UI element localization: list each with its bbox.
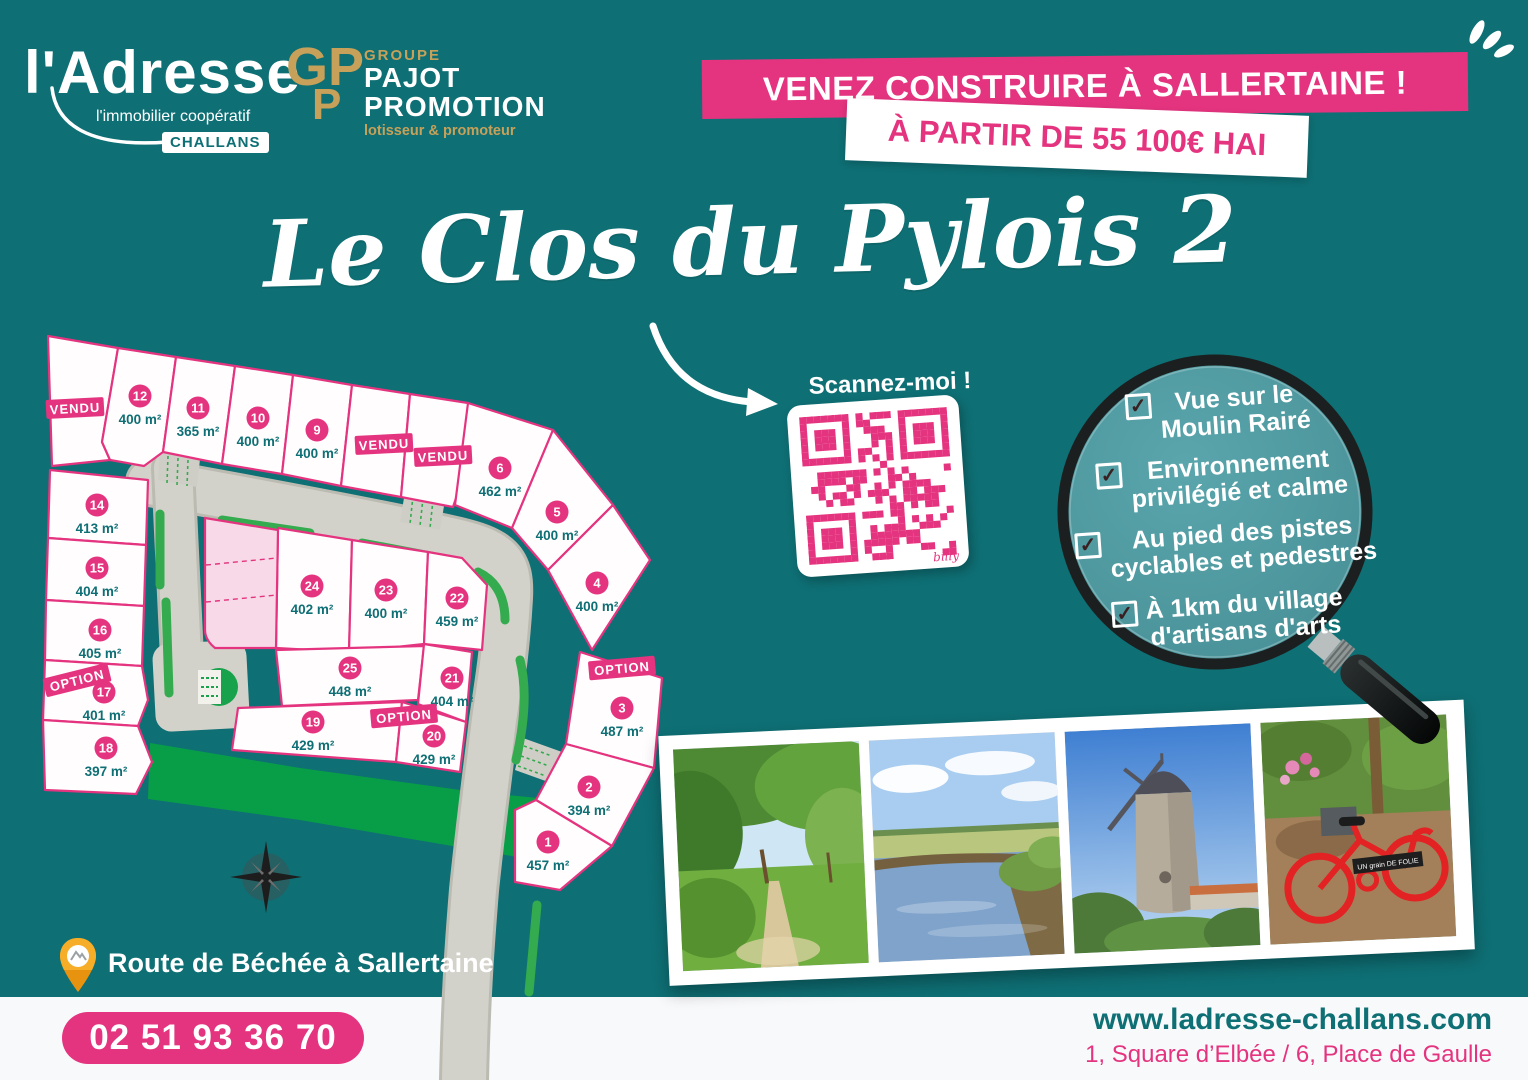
svg-text:19: 19 xyxy=(306,715,320,730)
ladresse-city-badge: CHALLANS xyxy=(162,132,269,153)
svg-text:401 m²: 401 m² xyxy=(83,708,126,723)
svg-text:5: 5 xyxy=(553,505,560,520)
poster: 1457 m²2394 m²3487 m²4400 m²5400 m²6462 … xyxy=(0,0,1528,1080)
lot-marker: 11365 m² xyxy=(177,397,220,440)
lot-marker: 3487 m² xyxy=(601,697,644,740)
pajot-tagline: lotisseur & promoteur xyxy=(364,124,546,139)
ladresse-tagline: l'immobilier coopératif xyxy=(96,108,250,126)
feature-item: ✓ Environnement privilégié et calme xyxy=(1095,444,1349,515)
svg-text:400 m²: 400 m² xyxy=(237,434,280,449)
svg-text:18: 18 xyxy=(99,741,113,756)
parking-stub xyxy=(158,452,200,487)
arrow-to-qr-icon xyxy=(653,326,778,416)
checkbox-icon: ✓ xyxy=(1074,532,1102,560)
svg-text:405 m²: 405 m² xyxy=(79,646,122,661)
svg-text:24: 24 xyxy=(305,579,320,594)
lot-marker: 4400 m² xyxy=(576,572,619,615)
status-label: VENDU xyxy=(414,445,473,467)
svg-text:12: 12 xyxy=(133,389,147,404)
svg-text:11: 11 xyxy=(191,401,205,416)
location-pin-icon xyxy=(60,938,96,992)
status-label: OPTION xyxy=(42,663,111,698)
lot-marker: 12400 m² xyxy=(119,385,162,428)
checkbox-icon: ✓ xyxy=(1111,600,1139,628)
photo-red-bicycle: UN grain DE FOLIE xyxy=(1260,714,1456,944)
sparkle-icon xyxy=(1466,18,1515,60)
lots-layer: 1457 m²2394 m²3487 m²4400 m²5400 m²6462 … xyxy=(42,385,656,874)
checkbox-icon: ✓ xyxy=(1124,393,1152,421)
svg-text:394 m²: 394 m² xyxy=(568,803,611,818)
lot-marker: 24402 m² xyxy=(291,575,334,618)
svg-text:459 m²: 459 m² xyxy=(436,614,479,629)
qr-modules xyxy=(799,407,957,565)
svg-text:15: 15 xyxy=(90,561,104,576)
lot-marker: 1457 m² xyxy=(527,831,570,874)
svg-text:397 m²: 397 m² xyxy=(85,764,128,779)
svg-text:22: 22 xyxy=(450,591,464,606)
svg-text:10: 10 xyxy=(251,411,265,426)
compass-rose xyxy=(230,841,302,913)
feature-item: ✓ À 1km du village d'artisans d'arts xyxy=(1111,584,1346,654)
lot-marker: 9400 m² xyxy=(296,419,339,462)
pajot-logo-text: GROUPE PAJOT PROMOTION lotisseur & promo… xyxy=(364,48,546,139)
svg-text:14: 14 xyxy=(90,498,105,513)
pajot-groupe: GROUPE xyxy=(364,48,546,63)
lot-marker: 17401 m² xyxy=(83,681,126,724)
svg-text:20: 20 xyxy=(427,729,441,744)
svg-text:402 m²: 402 m² xyxy=(291,602,334,617)
svg-text:3: 3 xyxy=(618,701,625,716)
lot-marker: 20429 m² xyxy=(413,725,456,768)
photo-windmill xyxy=(1065,723,1261,953)
svg-text:VENDU: VENDU xyxy=(417,448,468,466)
svg-text:413 m²: 413 m² xyxy=(76,521,119,536)
pink-parcel xyxy=(205,518,278,648)
svg-text:487 m²: 487 m² xyxy=(601,724,644,739)
svg-text:429 m²: 429 m² xyxy=(413,752,456,767)
feature-item: ✓ Vue sur le Moulin Rairé xyxy=(1124,380,1311,447)
svg-text:400 m²: 400 m² xyxy=(576,599,619,614)
svg-text:404 m²: 404 m² xyxy=(431,694,474,709)
svg-text:OPTION: OPTION xyxy=(48,666,106,694)
svg-text:6: 6 xyxy=(496,461,503,476)
svg-text:404 m²: 404 m² xyxy=(76,584,119,599)
svg-text:400 m²: 400 m² xyxy=(119,412,162,427)
svg-text:17: 17 xyxy=(97,685,111,700)
lot-marker: 21404 m² xyxy=(431,667,474,710)
lot-marker: 14413 m² xyxy=(76,494,119,537)
svg-text:OPTION: OPTION xyxy=(594,659,651,679)
lot-marker: 23400 m² xyxy=(365,579,408,622)
green-strips xyxy=(160,514,537,992)
svg-text:448 m²: 448 m² xyxy=(329,684,372,699)
svg-text:457 m²: 457 m² xyxy=(527,858,570,873)
lot-marker: 10400 m² xyxy=(237,407,280,450)
svg-text:25: 25 xyxy=(343,661,357,676)
svg-text:4: 4 xyxy=(593,576,601,591)
feature-item: ✓ Au pied des pistes cyclables et pedest… xyxy=(1074,511,1378,586)
parking-stub xyxy=(515,738,562,784)
status-label: VENDU xyxy=(355,433,414,455)
svg-text:2: 2 xyxy=(585,780,592,795)
lot-marker: 22459 m² xyxy=(436,587,479,630)
pajot-name-1: PAJOT xyxy=(364,63,546,92)
lot-marker: 5400 m² xyxy=(536,501,579,544)
agency-addresses: 1, Square d’Elbée / 6, Place de Gaulle xyxy=(1085,1041,1492,1069)
route-label: Route de Béchée à Sallertaine xyxy=(108,948,494,979)
roads xyxy=(150,452,562,1080)
svg-text:VENDU: VENDU xyxy=(358,436,409,454)
pajot-name-2: PROMOTION xyxy=(364,92,546,121)
lot-marker: 25448 m² xyxy=(329,657,372,700)
svg-text:462 m²: 462 m² xyxy=(479,484,522,499)
hedge-band xyxy=(148,743,560,863)
lot-marker: 15404 m² xyxy=(76,557,119,600)
lot-marker: 2394 m² xyxy=(568,776,611,819)
svg-text:21: 21 xyxy=(445,671,459,686)
photo-river xyxy=(869,732,1065,962)
qr-code: billy xyxy=(786,394,970,578)
svg-text:23: 23 xyxy=(379,583,393,598)
status-label: OPTION xyxy=(588,656,656,681)
green-circle-amenity xyxy=(198,668,238,706)
svg-text:1: 1 xyxy=(544,835,551,850)
pajot-monogram: GP P xyxy=(286,46,364,122)
qr-signature: billy xyxy=(933,549,960,565)
qr-label: Scannez-moi ! xyxy=(800,367,981,401)
page-title: Le Clos du Pylois 2 xyxy=(259,175,1241,309)
lot-parcels xyxy=(43,336,662,890)
svg-text:OPTION: OPTION xyxy=(376,707,433,727)
checkbox-icon: ✓ xyxy=(1095,462,1123,490)
svg-text:429 m²: 429 m² xyxy=(292,738,335,753)
status-label: OPTION xyxy=(370,704,438,729)
svg-text:9: 9 xyxy=(313,423,320,438)
parking-stub xyxy=(400,492,445,530)
phone-pill: 02 51 93 36 70 xyxy=(62,1012,364,1064)
status-label: VENDU xyxy=(46,397,105,419)
svg-text:VENDU: VENDU xyxy=(49,400,100,418)
lot-marker: 16405 m² xyxy=(79,619,122,662)
photo-country-path xyxy=(673,741,869,971)
svg-text:400 m²: 400 m² xyxy=(365,606,408,621)
lot-marker: 6462 m² xyxy=(479,457,522,500)
svg-text:400 m²: 400 m² xyxy=(536,528,579,543)
website-url: www.ladresse-challans.com xyxy=(1093,1003,1492,1037)
svg-text:400 m²: 400 m² xyxy=(296,446,339,461)
lot-marker: 18397 m² xyxy=(85,737,128,780)
svg-text:365 m²: 365 m² xyxy=(177,424,220,439)
lot-marker: 19429 m² xyxy=(292,711,335,754)
photo-strip: UN grain DE FOLIE xyxy=(658,700,1475,986)
svg-text:16: 16 xyxy=(93,623,107,638)
